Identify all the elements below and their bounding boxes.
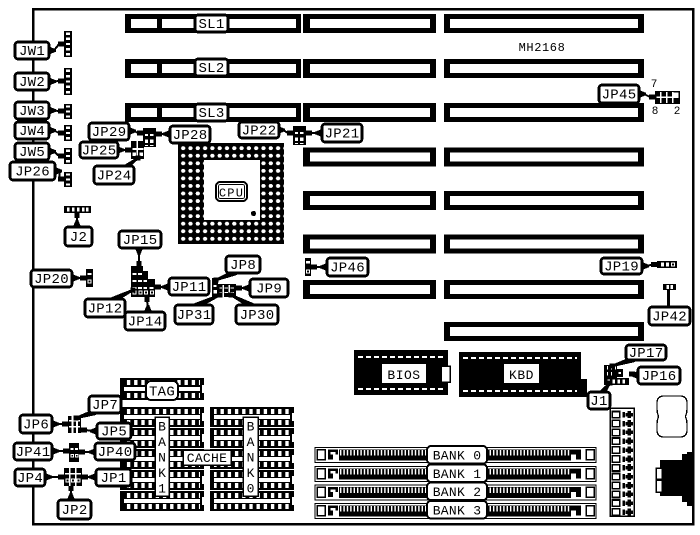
svg-text:BANK 1: BANK 1 (433, 467, 482, 482)
svg-text:CPU: CPU (219, 187, 244, 201)
svg-text:1: 1 (158, 482, 166, 497)
svg-text:JP40: JP40 (98, 445, 133, 461)
svg-text:JP1: JP1 (100, 471, 126, 487)
svg-text:JP46: JP46 (330, 261, 365, 277)
svg-text:TAG: TAG (149, 385, 175, 401)
svg-text:MH2168: MH2168 (519, 41, 566, 55)
svg-text:A: A (158, 435, 166, 450)
svg-text:K: K (247, 466, 255, 481)
svg-text:JP26: JP26 (15, 165, 50, 181)
svg-text:JP22: JP22 (242, 124, 277, 140)
svg-text:SL3: SL3 (198, 106, 224, 122)
svg-text:JP28: JP28 (173, 128, 208, 144)
svg-text:JP24: JP24 (97, 169, 132, 185)
svg-text:JW1: JW1 (19, 44, 45, 60)
svg-text:JP19: JP19 (604, 260, 639, 276)
svg-text:JP16: JP16 (642, 369, 677, 385)
svg-text:J1: J1 (590, 394, 607, 410)
svg-text:B: B (158, 420, 166, 435)
svg-text:BIOS: BIOS (387, 368, 420, 383)
svg-text:K: K (158, 466, 166, 481)
svg-text:JP4: JP4 (17, 471, 43, 487)
svg-text:JP29: JP29 (92, 125, 127, 141)
svg-text:7: 7 (651, 79, 658, 91)
svg-text:CACHE: CACHE (187, 451, 228, 466)
svg-text:J2: J2 (70, 230, 87, 246)
svg-text:JP30: JP30 (240, 308, 275, 324)
svg-text:JP12: JP12 (88, 302, 123, 318)
svg-text:BANK 0: BANK 0 (433, 449, 482, 464)
svg-text:B: B (247, 420, 255, 435)
svg-text:8: 8 (652, 106, 659, 118)
svg-text:JW3: JW3 (19, 104, 45, 120)
svg-text:A: A (247, 435, 255, 450)
svg-text:JP41: JP41 (16, 445, 51, 461)
svg-text:JP5: JP5 (101, 425, 127, 441)
svg-text:JW2: JW2 (19, 75, 45, 91)
svg-text:SL1: SL1 (198, 17, 224, 33)
svg-text:JP45: JP45 (602, 88, 637, 104)
svg-text:JP42: JP42 (652, 310, 687, 326)
svg-text:JP14: JP14 (128, 315, 163, 331)
svg-text:JP11: JP11 (172, 280, 207, 296)
svg-text:JP31: JP31 (177, 308, 212, 324)
svg-text:SL2: SL2 (198, 61, 224, 77)
svg-text:N: N (247, 451, 255, 466)
svg-text:KBD: KBD (509, 368, 534, 383)
svg-text:BANK 2: BANK 2 (433, 485, 482, 500)
svg-text:JP25: JP25 (82, 144, 117, 160)
svg-text:2: 2 (674, 106, 681, 118)
svg-text:JP6: JP6 (23, 418, 49, 434)
svg-text:JW5: JW5 (19, 145, 45, 161)
svg-text:BANK 3: BANK 3 (433, 503, 482, 518)
svg-text:JW4: JW4 (19, 124, 45, 140)
svg-text:JP2: JP2 (61, 503, 87, 519)
svg-text:N: N (158, 451, 166, 466)
svg-text:JP9: JP9 (256, 282, 282, 298)
svg-text:JP15: JP15 (123, 233, 158, 249)
svg-text:JP21: JP21 (325, 127, 360, 143)
svg-text:JP7: JP7 (92, 398, 118, 414)
svg-text:JP20: JP20 (34, 272, 69, 288)
svg-text:0: 0 (247, 482, 255, 497)
svg-text:JP8: JP8 (230, 258, 256, 274)
svg-text:JP17: JP17 (629, 346, 664, 362)
